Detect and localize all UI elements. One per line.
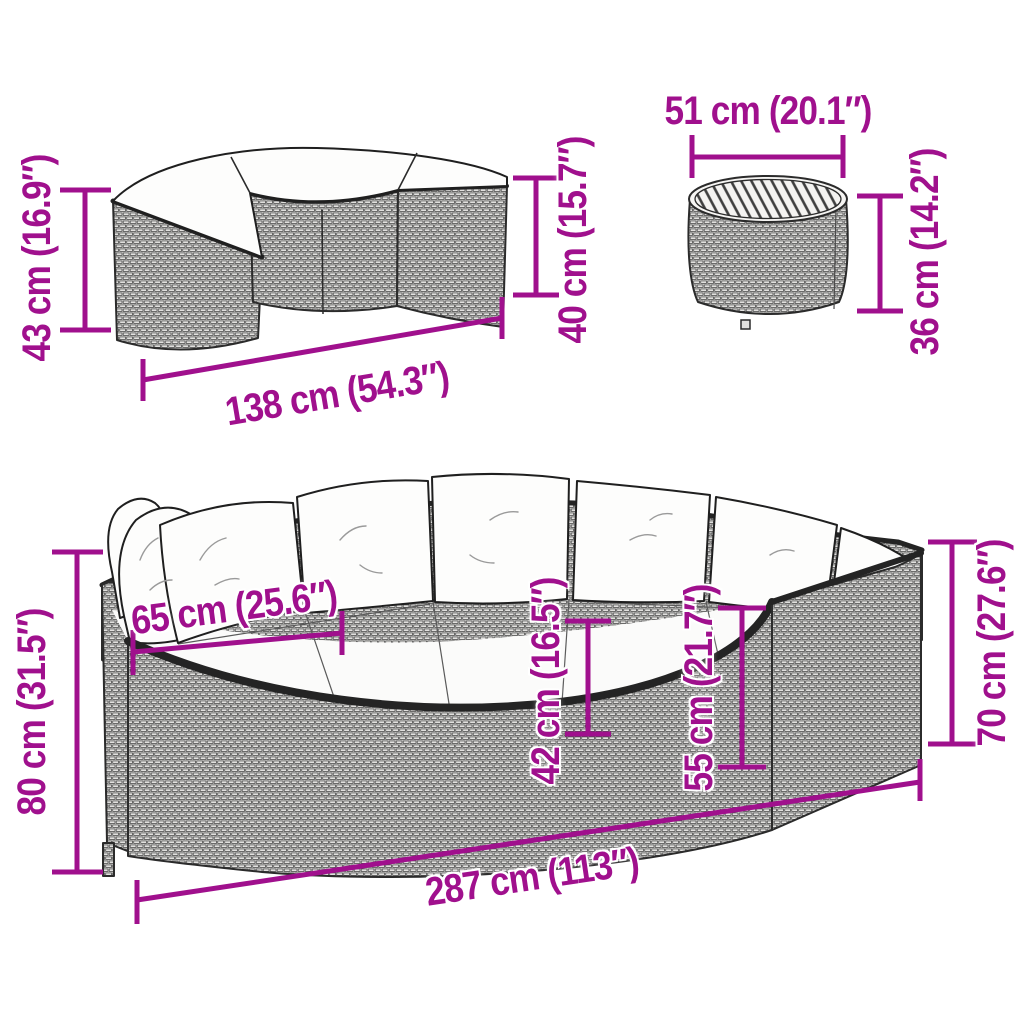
dim-label-sofa-seat-height: 42 cm (16.5″) <box>526 578 566 785</box>
dim-label-sofa-arm-height: 55 cm (21.7″) <box>679 585 719 792</box>
dimension-sofa-total-height <box>52 552 103 872</box>
dimension-table-diameter <box>692 135 843 178</box>
dim-label-sofa-back-height: 70 cm (27.6″) <box>972 540 1012 747</box>
table-foot <box>741 320 750 329</box>
bench-inner-wall-seam <box>322 210 323 314</box>
table-figure <box>688 176 847 329</box>
dim-label-sofa-total-height: 80 cm (31.5″) <box>12 609 52 816</box>
dim-label-bench-height: 43 cm (16.9″) <box>17 155 57 362</box>
dim-label-bench-seat-height: 40 cm (15.7″) <box>553 137 593 344</box>
product-dimension-diagram: 43 cm (16.9″) 138 cm (54.3″) 40 cm (15.7… <box>0 0 1024 1024</box>
sofa-figure <box>102 474 922 877</box>
dimension-table-height <box>857 196 903 311</box>
bench-figure <box>113 148 507 350</box>
table-top-slats <box>695 180 841 219</box>
dim-label-table-diameter: 51 cm (20.1″) <box>665 91 872 131</box>
sofa-left-leg <box>103 843 114 876</box>
dimension-bench-height <box>60 190 111 330</box>
bench-right-wall <box>397 186 507 327</box>
bench-inner-wall <box>250 190 398 311</box>
dim-label-table-height: 36 cm (14.2″) <box>905 149 945 356</box>
